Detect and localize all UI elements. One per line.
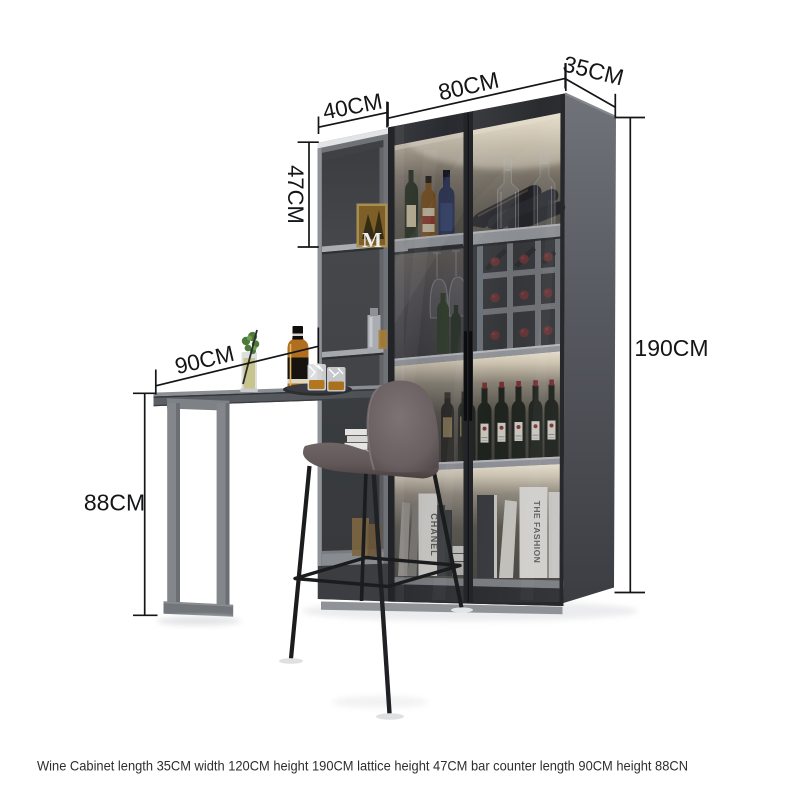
svg-text:Wine Cabinet length 35CM width: Wine Cabinet length 35CM width 120CM hei… [37,758,688,774]
svg-text:40CM: 40CM [321,89,385,125]
svg-text:M: M [362,228,382,252]
svg-text:88CM: 88CM [84,490,145,516]
svg-text:47CM: 47CM [283,165,308,224]
svg-text:190CM: 190CM [634,335,708,361]
svg-text:35CM: 35CM [561,50,627,90]
